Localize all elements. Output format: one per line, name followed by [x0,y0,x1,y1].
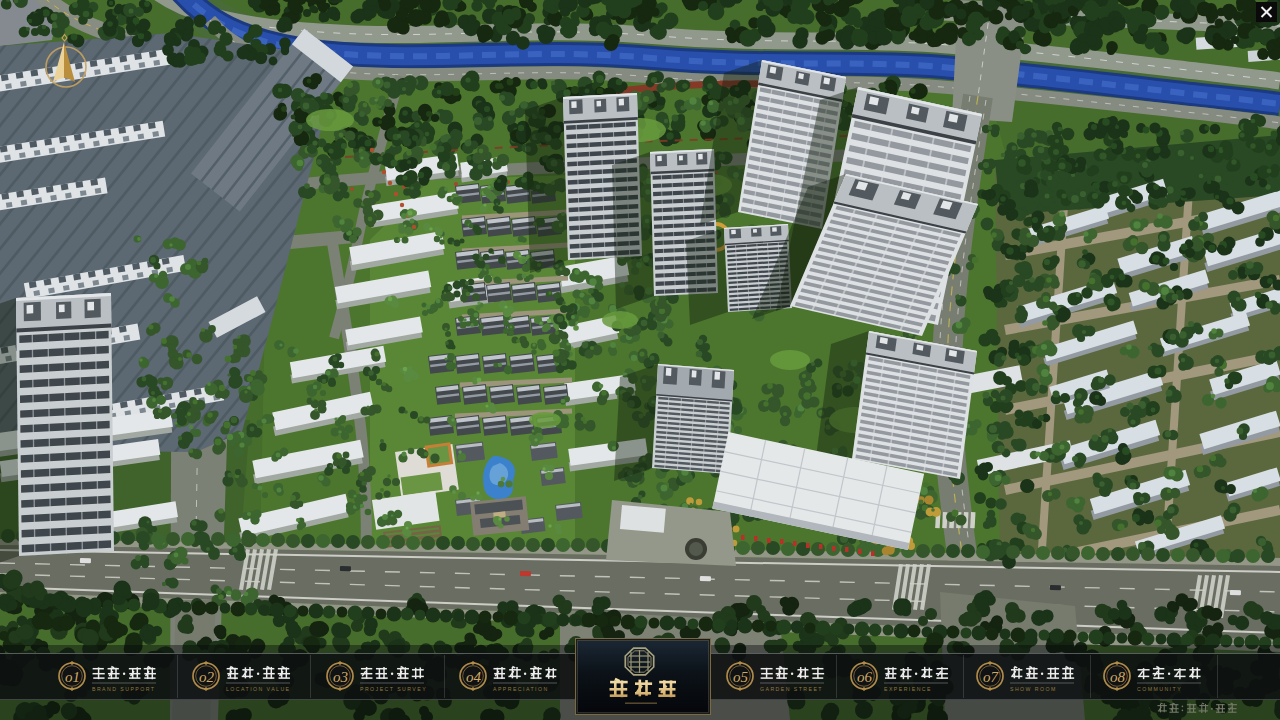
svg-text:COMMUNITY: COMMUNITY [1137,686,1182,692]
svg-text:o2: o2 [199,669,215,685]
svg-text:o7: o7 [983,669,1000,685]
svg-text:SHOW ROOM: SHOW ROOM [1010,686,1057,692]
svg-text:o5: o5 [733,669,749,685]
svg-text:o3: o3 [333,669,348,685]
svg-text:BRAND SUPPORT: BRAND SUPPORT [92,686,155,692]
svg-text:LOCATION VALUE: LOCATION VALUE [226,686,291,692]
svg-text:o6: o6 [857,669,873,685]
svg-text:o1: o1 [65,669,80,685]
svg-text:PROJECT SURVEY: PROJECT SURVEY [360,686,427,692]
svg-text:o8: o8 [1110,669,1126,685]
svg-text:GARDEN STREET: GARDEN STREET [760,686,823,692]
svg-text:APPRECIATION: APPRECIATION [493,686,549,692]
svg-text:o4: o4 [466,669,482,685]
svg-text:EXPERIENCE: EXPERIENCE [884,686,932,692]
